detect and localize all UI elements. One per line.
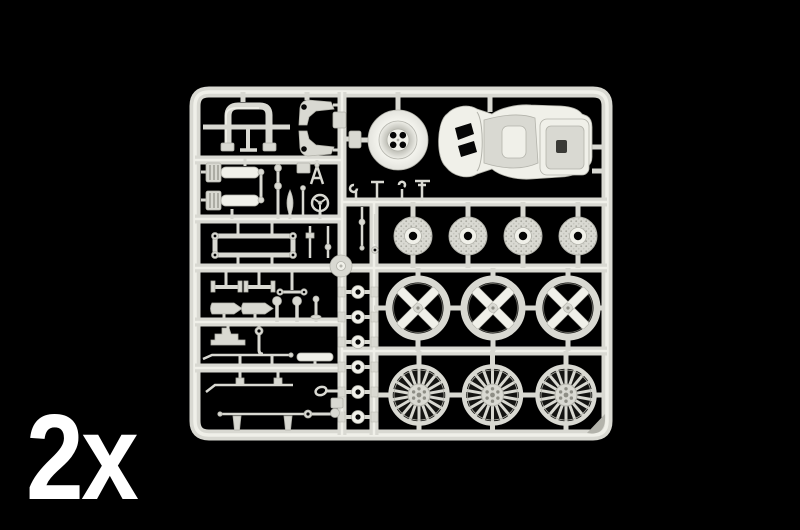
sprue-photo: 2x <box>0 0 800 530</box>
washer-part <box>338 386 378 399</box>
washer-part <box>338 311 378 324</box>
brake-disc-part <box>559 202 597 268</box>
wheel-dish-part <box>368 110 428 170</box>
cross-spoke-rim-part <box>531 268 605 351</box>
mount-parts <box>203 326 333 364</box>
brake-disc-part <box>449 202 487 268</box>
washer-part <box>338 361 378 374</box>
roll-bar-part <box>203 106 290 151</box>
small-linkage-parts <box>275 160 329 219</box>
brake-disc-part <box>394 202 432 268</box>
washer-part <box>338 336 378 349</box>
quantity-label: 2x <box>26 396 136 518</box>
brake-disc-part <box>504 202 542 268</box>
turbofan-wheel-part <box>374 351 465 433</box>
frame-part <box>212 223 297 265</box>
turbofan-wheel-part <box>464 351 539 433</box>
seat-mount-slot <box>556 140 567 153</box>
cross-spoke-rim-part <box>374 268 466 351</box>
tie-rod-parts <box>211 272 307 295</box>
cross-spoke-rim-part <box>456 268 541 351</box>
shock-absorber-parts <box>201 157 264 219</box>
rod-parts <box>206 372 344 430</box>
racing-seat-part <box>439 105 592 179</box>
washer-part <box>338 286 378 299</box>
turbofan-wheel-part <box>538 351 603 433</box>
